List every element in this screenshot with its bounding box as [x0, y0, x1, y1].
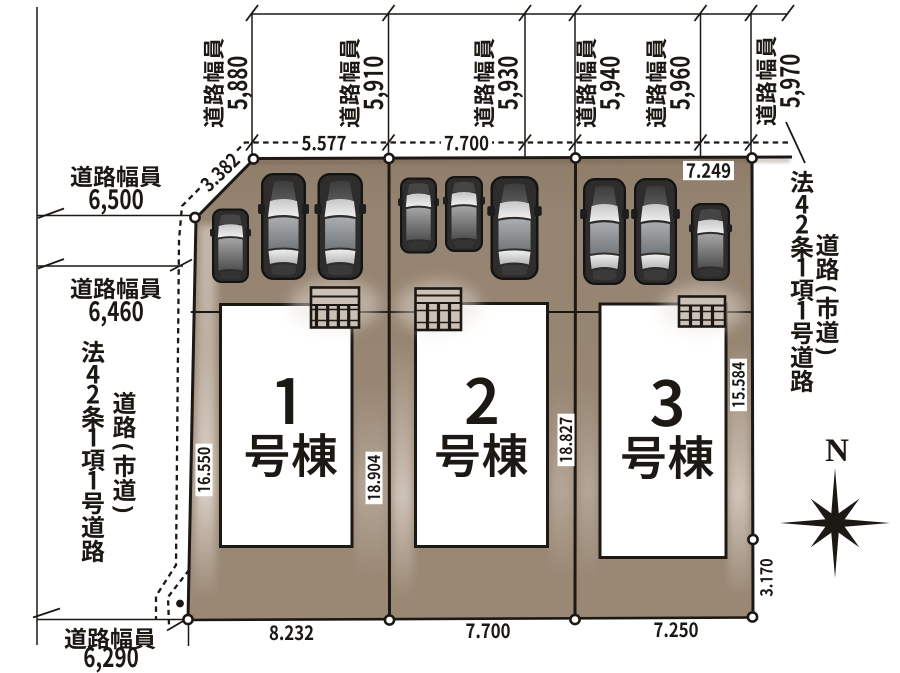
- svg-text:(: (: [112, 443, 137, 451]
- svg-text:(: (: [815, 285, 840, 293]
- svg-text:N: N: [825, 433, 849, 469]
- svg-text:): ): [815, 348, 840, 355]
- svg-text:): ): [112, 506, 137, 513]
